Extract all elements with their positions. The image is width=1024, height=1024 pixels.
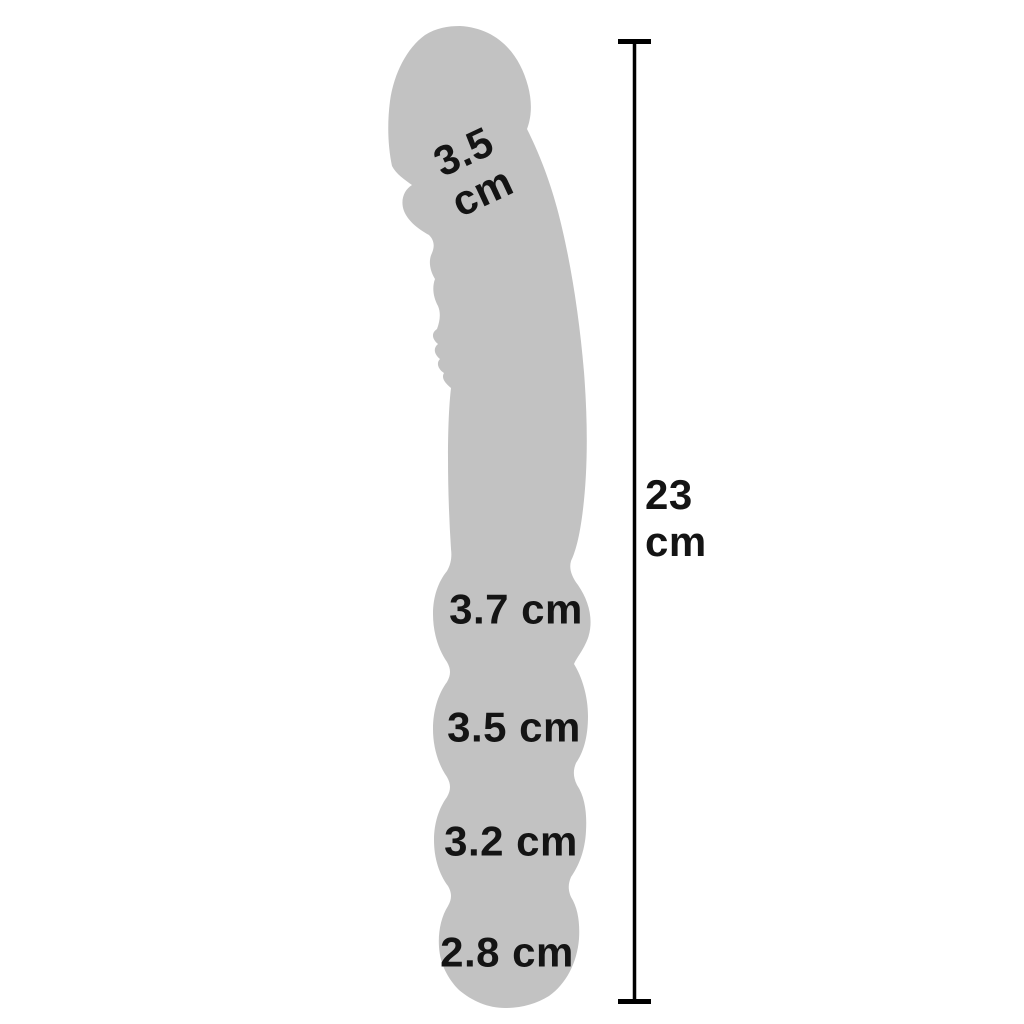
product-dimension-diagram: 3.5 cm 3.7 cm 3.5 cm 3.2 cm 2.8 cm 23 cm bbox=[0, 0, 1024, 1024]
bead-2-diameter-label: 3.5 cm bbox=[447, 703, 581, 750]
bead-4-diameter-label: 2.8 cm bbox=[440, 928, 574, 975]
bead-3-diameter-label: 3.2 cm bbox=[444, 817, 578, 864]
bead-1-diameter-label: 3.7 cm bbox=[449, 585, 583, 632]
total-length-label: 23 cm bbox=[645, 471, 707, 565]
diagram-artwork bbox=[0, 0, 1024, 1024]
